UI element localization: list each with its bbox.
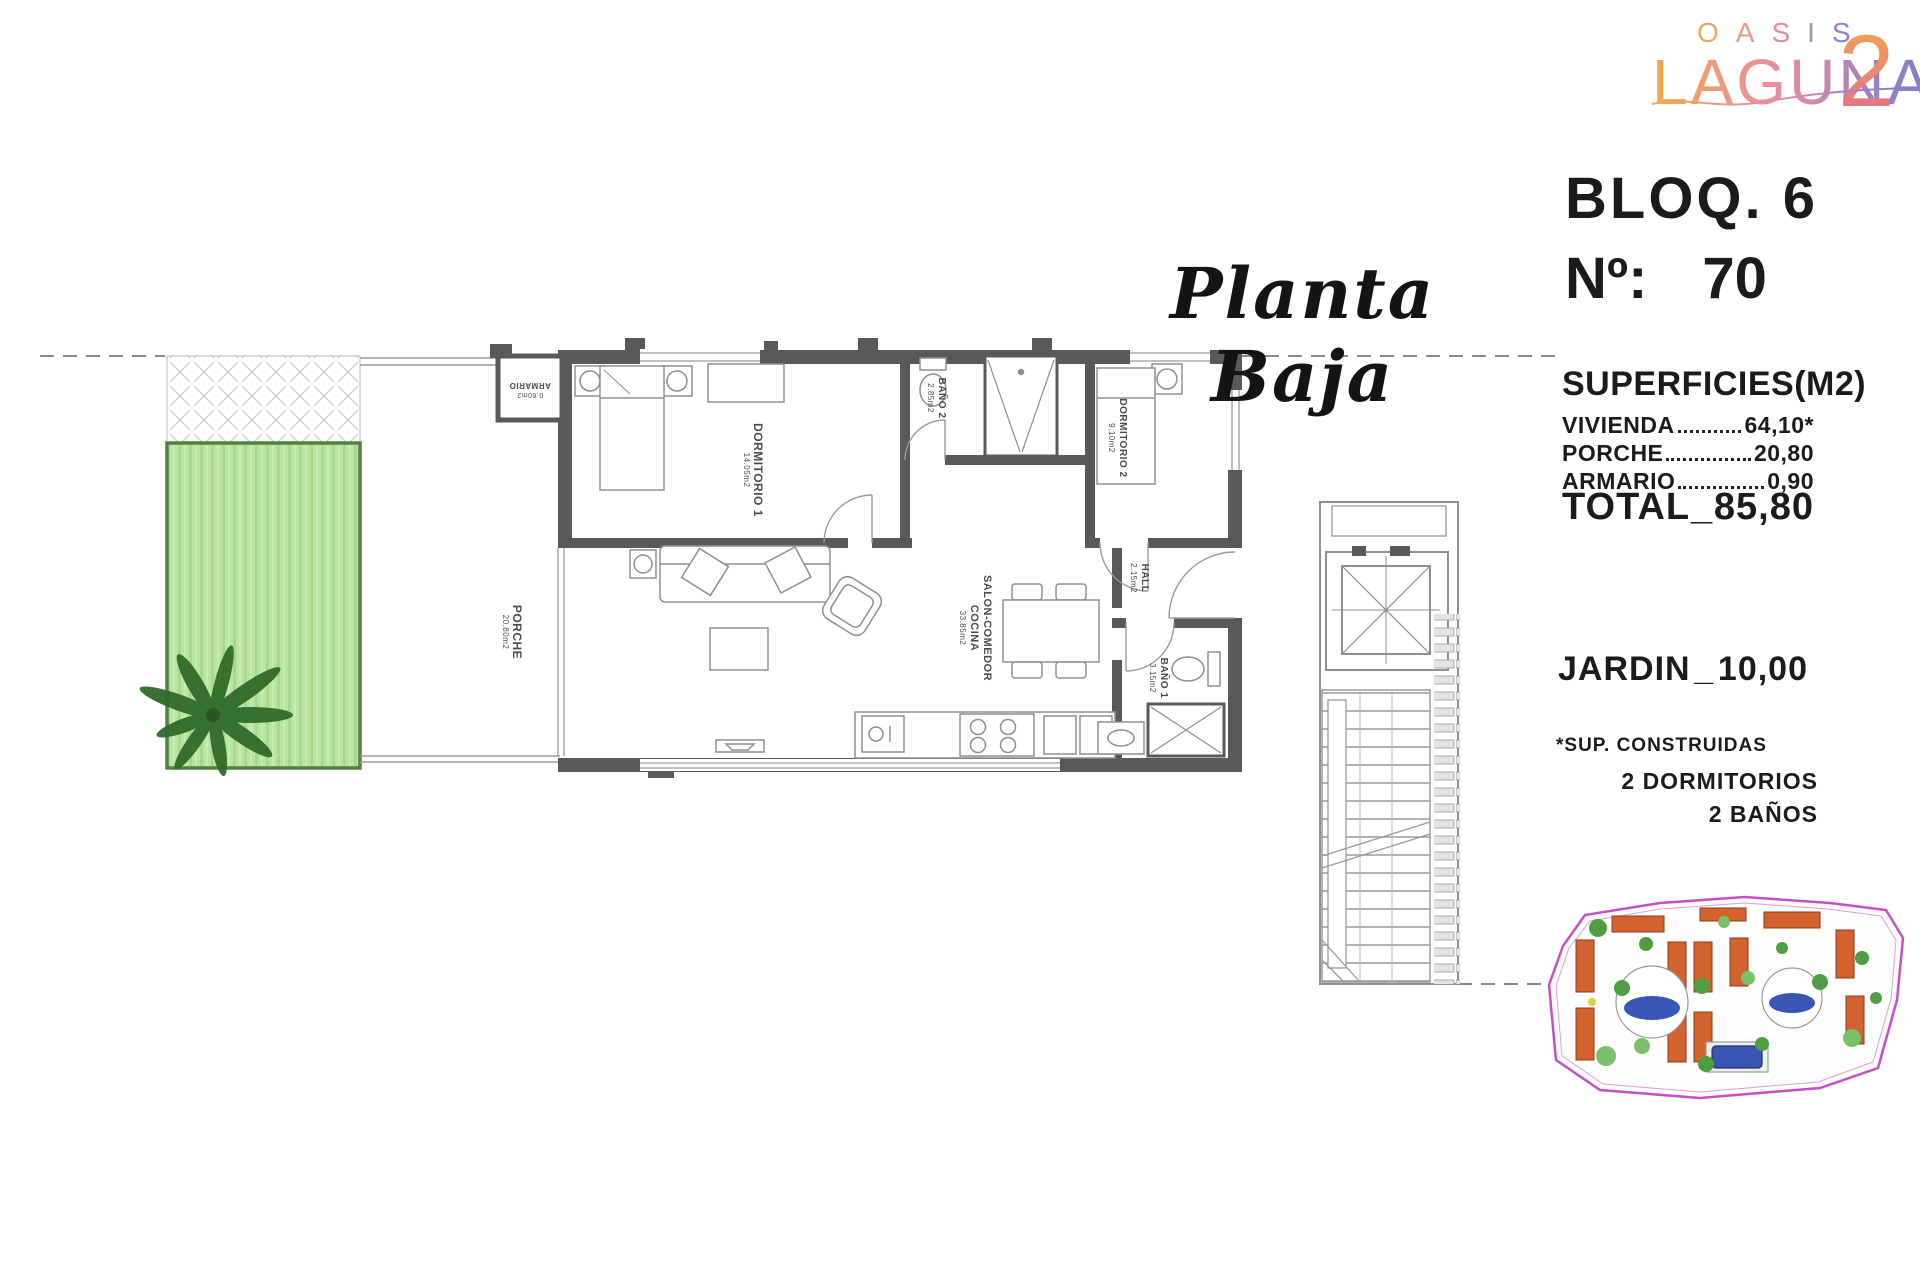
surfaces-table: VIVIENDA 64,10* PORCHE 20,80 ARMARIO 0,9… <box>1562 412 1814 496</box>
room-label-bano1: BAÑO 1 3.15m2 <box>1143 643 1173 713</box>
feature-bathrooms: 2 BAÑOS <box>1560 798 1818 831</box>
surfaces-row-porche: PORCHE 20,80 <box>1562 440 1814 468</box>
unit-number-row: Nº: 70 <box>1565 245 1805 312</box>
dotted-leader <box>1678 430 1742 433</box>
footnote: *SUP. CONSTRUIDAS <box>1556 735 1767 757</box>
surfaces-row-vivienda: VIVIENDA 64,10* <box>1562 412 1814 440</box>
feature-bedrooms: 2 DORMITORIOS <box>1560 765 1818 798</box>
room-label-armario: 0.60m2 ARMARIO <box>500 376 560 402</box>
surfaces-total-row: TOTAL _ 85,80 <box>1562 486 1814 529</box>
dotted-leader <box>1666 458 1751 461</box>
room-label-bano2: BAÑO 2 2.85m2 <box>921 363 951 433</box>
floorplan-sheet: OASIS LAGUNA 2 Planta Baja DORMITORIO 1 … <box>0 0 1920 1280</box>
unit-number-label: Nº: <box>1565 245 1647 312</box>
unit-number-value: 70 <box>1702 245 1767 312</box>
features-list: 2 DORMITORIOS 2 BAÑOS <box>1560 765 1818 832</box>
living-room-furniture <box>630 546 885 752</box>
garden-row: JARDIN _ 10,00 <box>1558 650 1808 689</box>
site-plan-map <box>1549 897 1903 1098</box>
room-label-dormitorio2: DORMITORIO 2 9.10m2 <box>1099 383 1135 493</box>
stairwell-block <box>1320 502 1460 984</box>
plan-title: Planta Baja <box>1095 252 1510 418</box>
hatch-area <box>167 356 360 443</box>
room-label-hall: HALL 2.15m2 <box>1125 551 1153 605</box>
room-label-dormitorio1: DORMITORIO 1 14.05m2 <box>731 410 775 530</box>
brand-logo: OASIS LAGUNA 2 <box>1652 14 1920 128</box>
block-number: BLOQ. 6 <box>1565 165 1818 232</box>
room-label-porche: PORCHE 20.80m2 <box>492 577 532 687</box>
surfaces-header: SUPERFICIES(M2) <box>1562 365 1866 404</box>
room-label-salon: SALON-COMEDOR COCINA 33.85m2 <box>945 567 1005 689</box>
logo-number: 2 <box>1838 14 1895 128</box>
